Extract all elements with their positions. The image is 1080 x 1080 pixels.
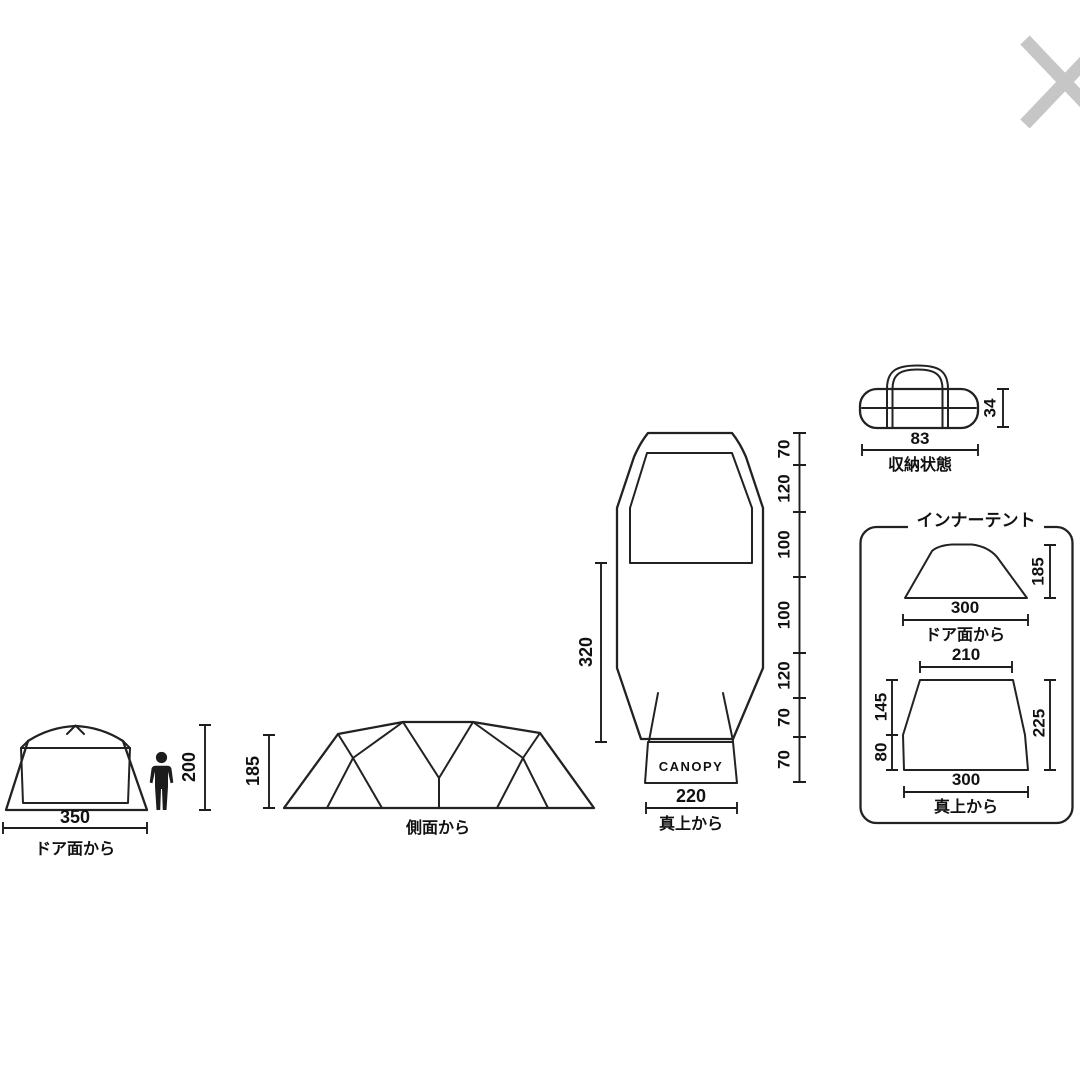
person-icon [150, 752, 174, 810]
inner-bottom-width-value: 300 [952, 770, 980, 789]
side-height-dim-line [263, 735, 275, 808]
inner-top-outline [903, 680, 1028, 770]
front-view-diagram: 350 ドア面から 200 [3, 725, 211, 858]
top-view-diagram: CANOPY 320 220 真上から 70 120 100 100 120 7… [576, 433, 806, 833]
person-height-dim-line [199, 725, 211, 810]
segment-value: 120 [775, 474, 794, 502]
inner-left-upper-value: 145 [872, 693, 891, 721]
storage-height-value: 34 [981, 398, 1000, 417]
storage-bag-handle [887, 366, 948, 390]
front-tent-outline [6, 726, 147, 810]
segment-scale-line [793, 433, 806, 782]
inner-front-outline [905, 545, 1027, 599]
side-view-caption: 側面から [405, 818, 470, 837]
image-viewer: 350 ドア面から 200 185 側面から CANOPY 320 220 真上… [0, 0, 1080, 1080]
inner-right-value: 225 [1030, 709, 1049, 737]
front-tent-door-panel [21, 748, 130, 803]
canopy-pole-lines [649, 693, 733, 741]
inner-left-lower-value: 80 [872, 743, 891, 762]
top-inner-length-value: 320 [576, 637, 596, 667]
inner-top-width-value: 210 [952, 645, 980, 664]
storage-width-value: 83 [911, 429, 930, 448]
inner-front-height-value: 185 [1029, 557, 1048, 585]
top-view-caption: 真上から [659, 814, 723, 833]
segment-value: 120 [775, 661, 794, 689]
storage-bag-diagram: 34 83 収納状態 [860, 366, 1009, 475]
inner-tent-title: インナーテント [917, 511, 1036, 530]
front-width-value: 350 [60, 807, 90, 827]
inner-front-width-value: 300 [951, 598, 979, 617]
segment-value: 70 [775, 750, 794, 769]
canopy-width-value: 220 [676, 786, 706, 806]
segment-value: 100 [775, 601, 794, 629]
tent-dimension-diagram: 350 ドア面から 200 185 側面から CANOPY 320 220 真上… [0, 0, 1080, 1080]
top-view-segment-scale: 70 120 100 100 120 70 70 [775, 433, 807, 782]
close-icon[interactable] [1025, 40, 1080, 124]
segment-value: 70 [775, 440, 794, 459]
front-tent-seams [21, 741, 130, 748]
inner-tent-panel: インナーテント 185 300 ドア面から 210 145 80 225 300… [861, 511, 1073, 823]
inner-front-caption: ドア面から [925, 626, 1005, 644]
person-height-value: 200 [179, 752, 199, 782]
side-view-diagram: 185 側面から [243, 722, 594, 837]
storage-caption: 収納状態 [888, 455, 952, 474]
inner-top-caption: 真上から [934, 797, 998, 816]
segment-value: 100 [775, 530, 794, 558]
top-inner-length-dim-line [595, 563, 607, 742]
side-tent-poles [327, 722, 548, 808]
segment-value: 70 [775, 708, 794, 727]
top-view-inner-room [630, 453, 752, 563]
side-height-value: 185 [243, 756, 263, 786]
canopy-label: CANOPY [659, 759, 724, 774]
front-view-caption: ドア面から [35, 840, 115, 858]
